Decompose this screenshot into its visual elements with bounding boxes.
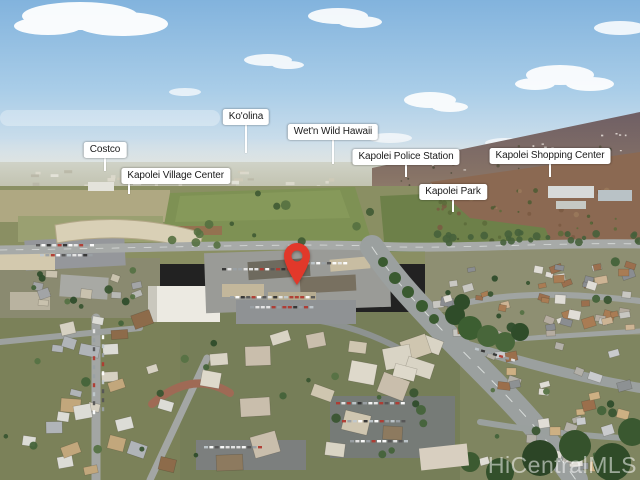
map-label-text: Kapolei Police Station <box>352 149 459 165</box>
map-label-text: Kapolei Village Center <box>121 168 230 184</box>
map-label-text: Costco <box>84 142 127 158</box>
location-pin-icon <box>284 243 310 285</box>
map-label: Ko'olina <box>246 109 292 153</box>
map-label: Kapolei Village Center <box>129 168 238 194</box>
map-label-text: Wet'n Wild Hawaii <box>288 124 378 140</box>
label-leader-line <box>245 125 247 153</box>
listing-photo: Costco Ko'olina Wet'n Wild Hawaii Kapole… <box>0 0 640 480</box>
map-label: Kapolei Shopping Center <box>550 148 640 177</box>
aerial-scene <box>0 0 640 480</box>
label-leader-line <box>549 164 551 177</box>
label-leader-line <box>452 200 454 212</box>
map-label-text: Ko'olina <box>223 109 269 125</box>
costco-building <box>88 182 114 191</box>
map-label: Kapolei Park <box>453 184 521 212</box>
label-leader-line <box>405 165 407 177</box>
map-label: Costco <box>105 142 148 171</box>
map-label-text: Kapolei Shopping Center <box>490 148 611 164</box>
watermark: HiCentralMLS <box>488 452 637 479</box>
map-label-text: Kapolei Park <box>419 184 487 200</box>
label-leader-line <box>128 184 130 194</box>
label-leader-line <box>104 158 106 171</box>
label-leader-line <box>332 140 334 164</box>
